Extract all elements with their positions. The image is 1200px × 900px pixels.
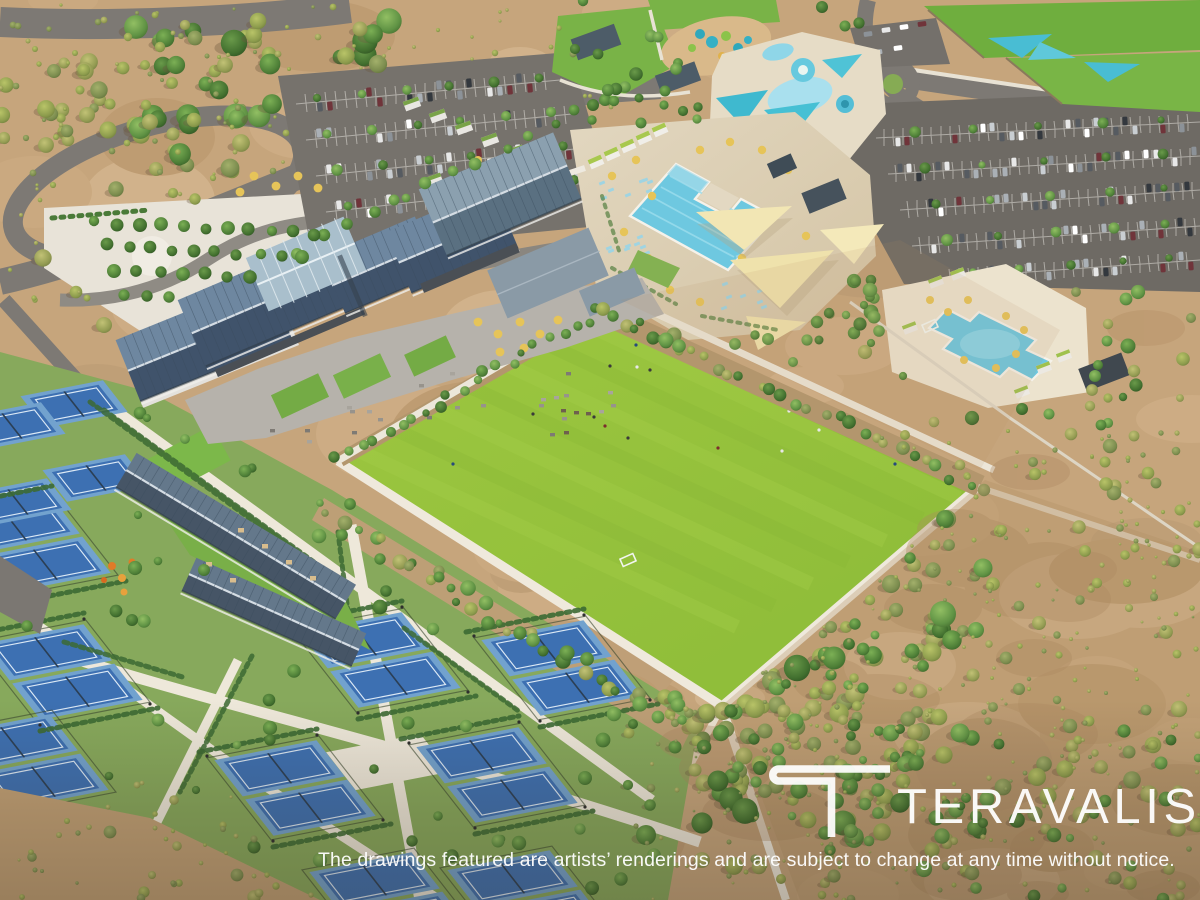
svg-text:The drawings featured are arti: The drawings featured are artists’ rende…: [318, 849, 1175, 871]
svg-text:TERAVALIS: TERAVALIS: [897, 780, 1200, 834]
